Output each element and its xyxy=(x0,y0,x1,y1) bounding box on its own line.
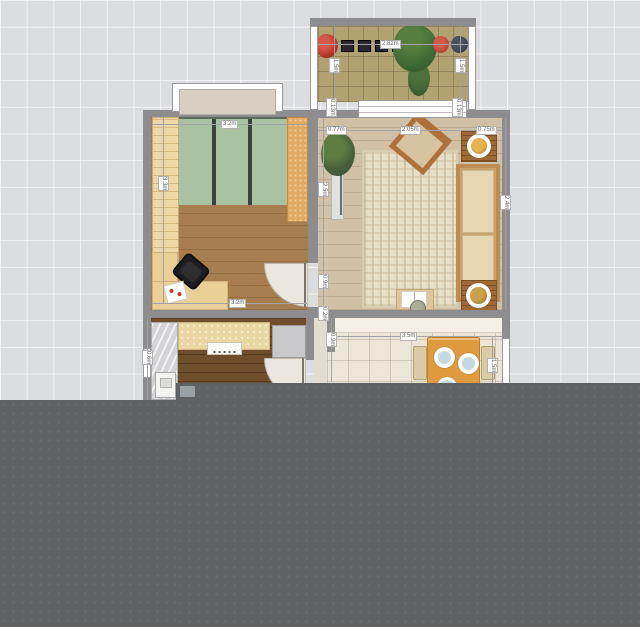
dim-kitchen-left: 0.6m xyxy=(142,350,153,365)
washer-door xyxy=(160,378,172,388)
dim-dining-width: 3.5m xyxy=(400,332,417,341)
wall-bottom-left[interactable] xyxy=(143,310,314,318)
measure-line xyxy=(163,117,164,303)
sink-unit[interactable] xyxy=(272,325,306,358)
dim-door-width: 0.9m xyxy=(318,274,329,289)
overlay-artifact xyxy=(180,386,195,397)
dim-balcony-left: 1.5m xyxy=(329,58,340,73)
dim-hall-top: 0.9m xyxy=(326,332,337,347)
dark-overlay-right xyxy=(176,383,640,627)
measure-line xyxy=(334,336,502,337)
dinner-plate-1[interactable] xyxy=(434,347,455,368)
dim-wall-gap: 0.2m xyxy=(318,306,329,321)
dim-living-top-mid: 2.05m xyxy=(400,126,421,135)
dim-bedroom-left: 3.3m xyxy=(158,176,169,191)
dining-window-right[interactable] xyxy=(502,338,510,388)
stove[interactable] xyxy=(207,342,242,355)
measure-line xyxy=(331,318,332,382)
sofa-cushion xyxy=(462,170,494,233)
wardrobe[interactable] xyxy=(179,117,287,205)
area-rug[interactable] xyxy=(362,150,458,308)
food xyxy=(471,138,487,154)
dim-balcony-right: 1.5m xyxy=(455,58,466,73)
food-plate-bottom[interactable] xyxy=(466,283,491,308)
floor-plan-canvas: 3.2m 3.2m 3.3m 2.82m 1.5m 1.5m 0.13m 0.1… xyxy=(0,0,640,627)
living-balcony-window[interactable] xyxy=(358,100,467,118)
balcony-planter[interactable] xyxy=(341,40,354,52)
plate-center xyxy=(462,357,476,371)
food xyxy=(470,287,487,304)
balcony-planter[interactable] xyxy=(358,40,371,52)
plate-center xyxy=(438,351,452,365)
wardrobe-divider xyxy=(248,119,252,205)
dim-living-right: 2.4m xyxy=(500,195,511,210)
dim-living-top-right: 0.75m xyxy=(476,126,497,135)
dim-living-left: 2.5m xyxy=(318,182,329,197)
wardrobe-divider xyxy=(212,119,216,205)
dim-window-right-end: 0.13m xyxy=(452,98,463,117)
food-plate-top[interactable] xyxy=(467,134,491,158)
balcony-window-left[interactable] xyxy=(310,26,318,110)
dining-floor-band xyxy=(327,318,502,333)
dim-dining-right: 1.5m xyxy=(487,358,498,373)
wall-balcony-top[interactable] xyxy=(310,18,476,26)
bay-window-sill xyxy=(179,89,276,115)
side-panel-cabinet[interactable] xyxy=(287,117,308,222)
dining-chair-left[interactable] xyxy=(413,346,427,380)
dim-balcony-width: 2.82m xyxy=(380,40,401,49)
washing-machine[interactable] xyxy=(155,372,176,398)
dark-overlay-left xyxy=(0,400,176,627)
office-chair-seat xyxy=(179,260,202,283)
measure-line xyxy=(505,118,506,310)
dinner-plate-2[interactable] xyxy=(458,353,479,374)
bedroom-door-leaf[interactable] xyxy=(304,263,306,307)
dim-window-left-end: 0.13m xyxy=(326,98,337,117)
dim-bedroom-top: 3.2m xyxy=(221,120,238,129)
balcony-window-right[interactable] xyxy=(468,26,476,110)
wall-bottom-right[interactable] xyxy=(327,310,510,318)
dim-bedroom-bottom: 3.2m xyxy=(229,299,246,308)
paper-mark xyxy=(177,292,182,297)
paper-mark xyxy=(169,288,174,293)
wall-bedroom-living-divider[interactable] xyxy=(308,117,318,263)
dim-living-top-left: 0.77m xyxy=(326,126,347,135)
wall-kitchen-right[interactable] xyxy=(306,318,314,360)
stove-knobs xyxy=(212,351,238,353)
